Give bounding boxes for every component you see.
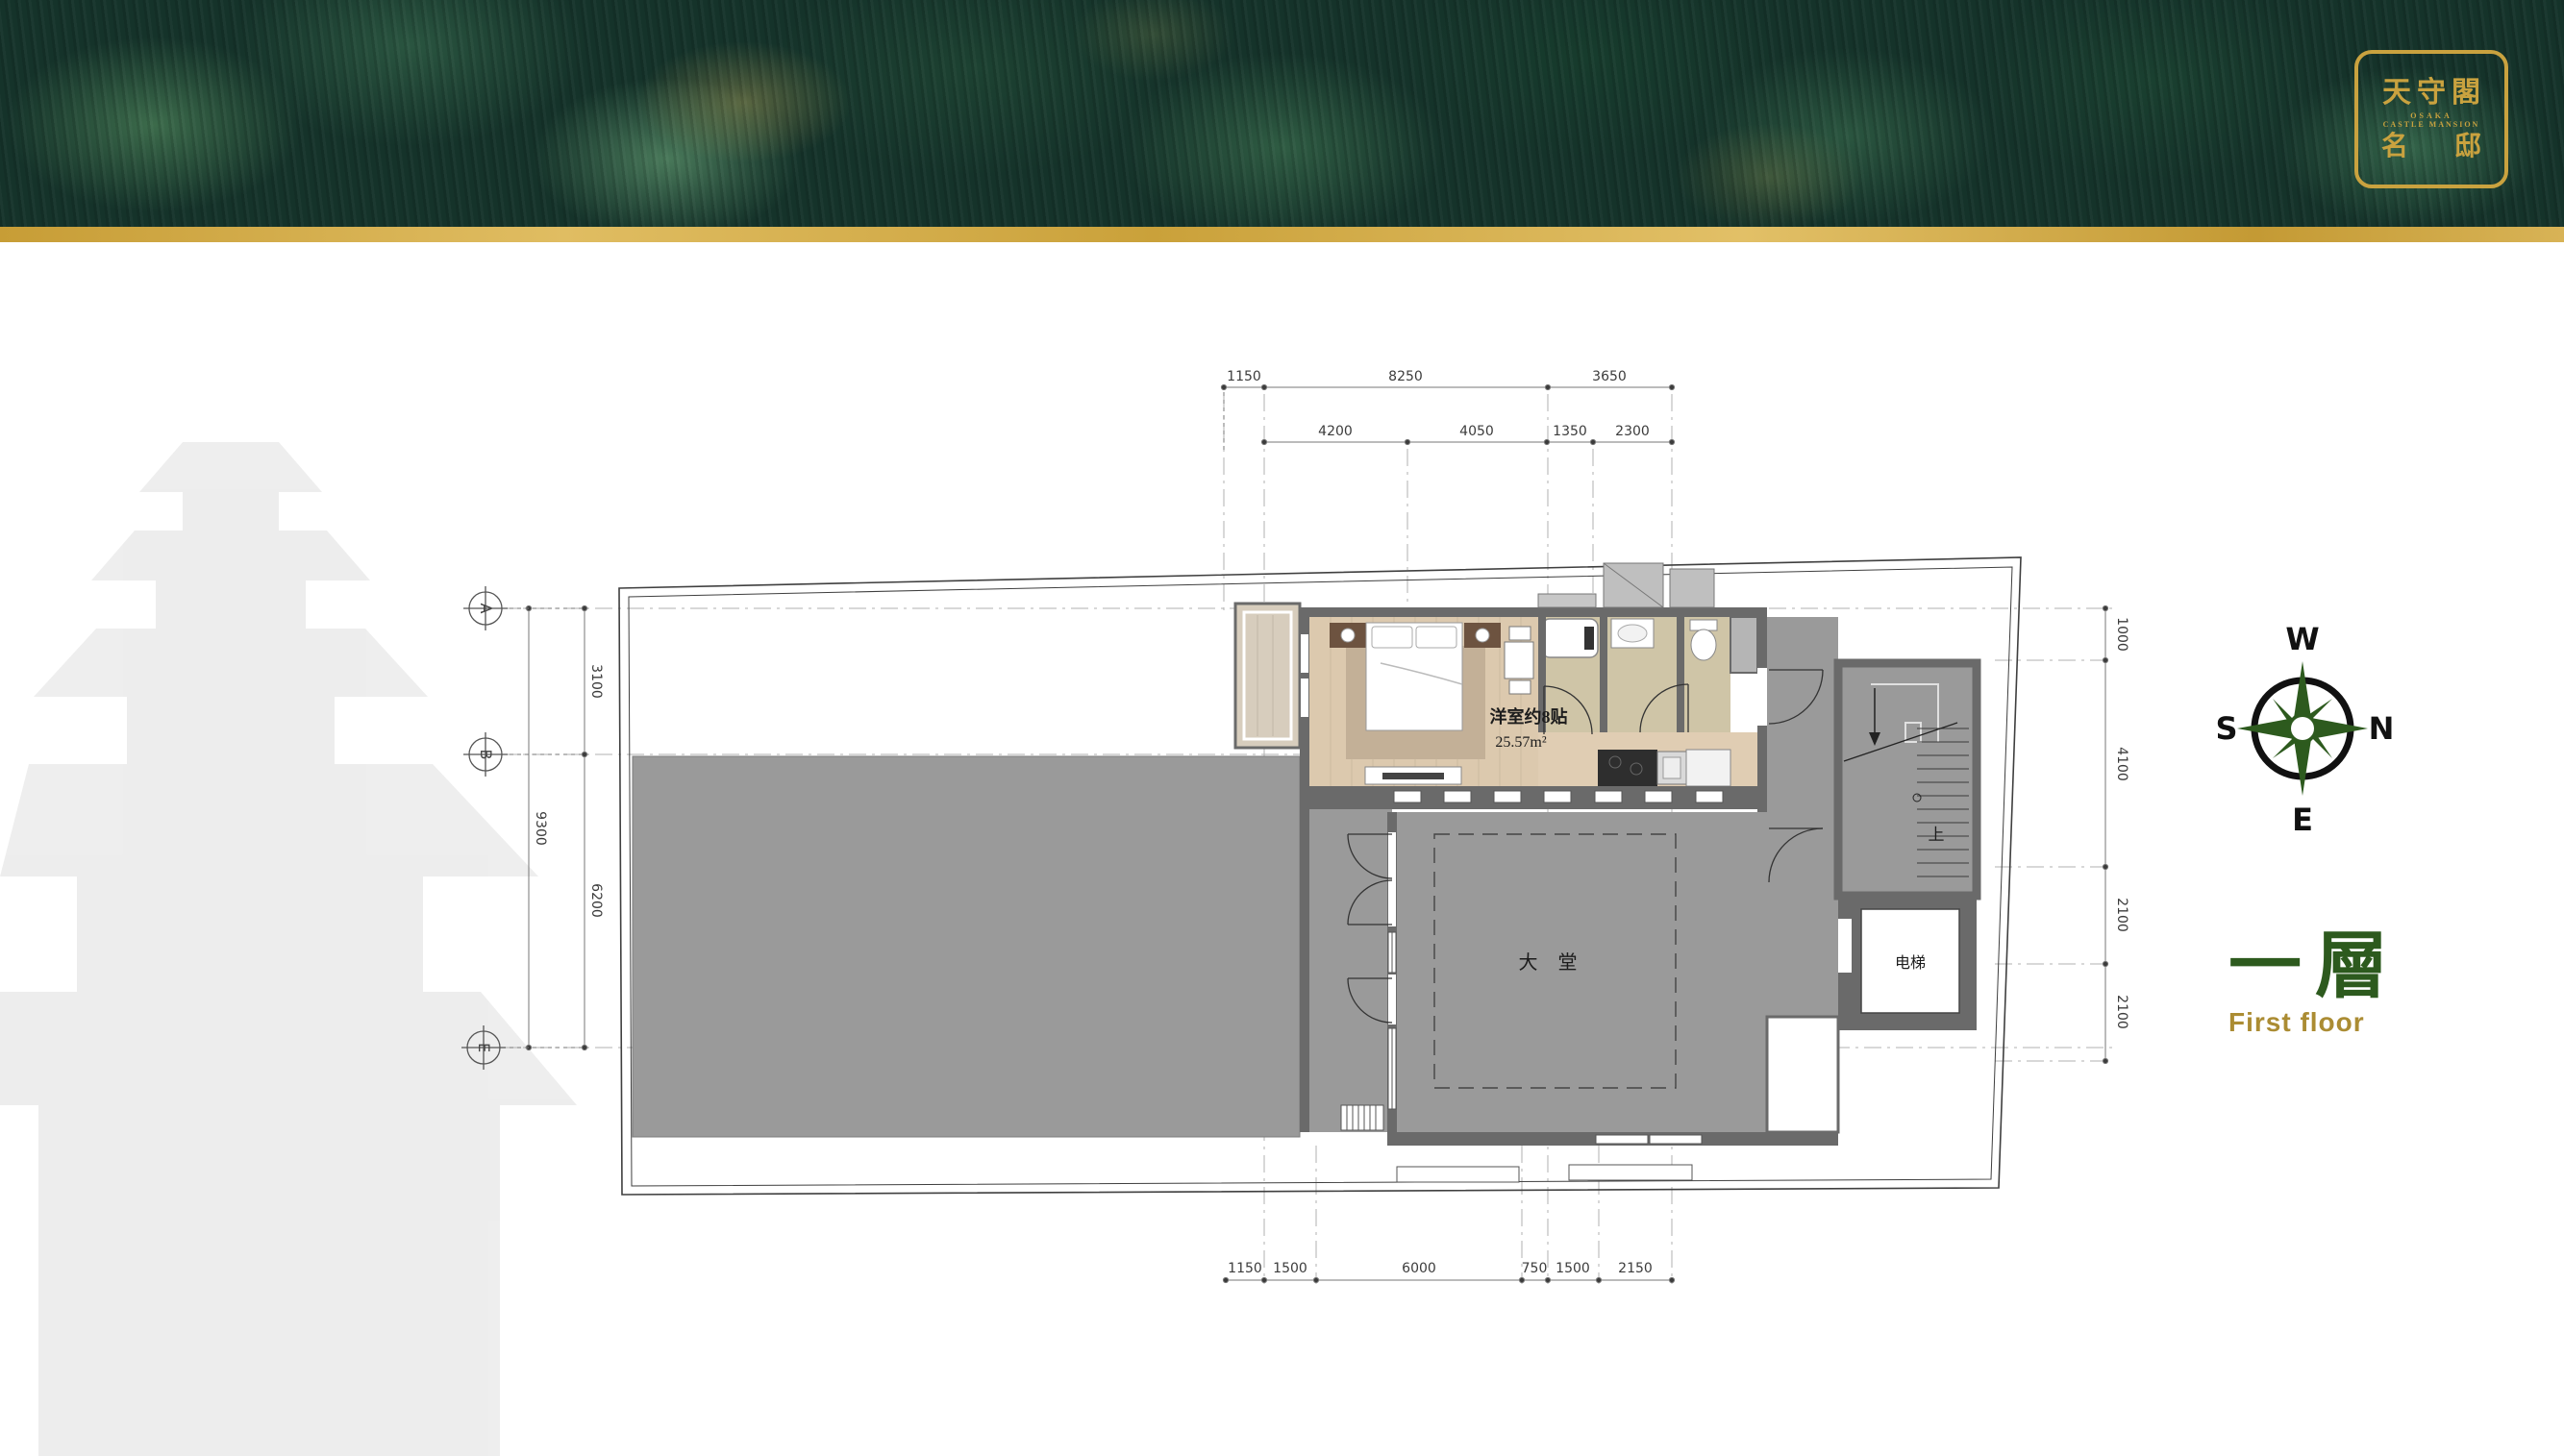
lobby-label: 大 堂 [1519,951,1585,974]
toilet-tank [1690,620,1717,630]
dim-label: 4050 [1459,424,1494,439]
chair-top [1509,627,1531,640]
dim-label: 1500 [1556,1261,1590,1276]
elevator-label: 电梯 [1895,954,1926,972]
chair-bottom [1509,680,1531,694]
compass-south-label: S [2215,710,2237,747]
dim-label: 1150 [1227,369,1261,384]
lamp-right [1476,629,1489,642]
grid-bubble-e: E [475,1043,493,1052]
compass-east-label: E [2292,802,2313,836]
compass-rose: W N S E [2206,615,2408,836]
bedroom-label: 洋室约8贴 [1490,706,1568,727]
dim-label: 1150 [1228,1261,1262,1276]
west-porch [1235,604,1300,748]
toilet [1691,629,1716,660]
compass-west-label: W [2285,621,2319,657]
dim-label: 2100 [2114,898,2129,932]
floor-title-block: 一層 First floor [2228,930,2478,1038]
dim-label: 1000 [2114,617,2129,652]
dim-label: 4200 [1318,424,1353,439]
cooktop-counter [1598,750,1657,786]
dim-label: 2100 [2114,995,2129,1029]
grid-bubble-b: B [477,750,495,760]
counter [1686,750,1730,786]
stair-block [1838,663,1977,896]
grid-bubble-a: A [477,604,495,614]
dim-label: 1500 [1273,1261,1307,1276]
dim-label: 6000 [1402,1261,1436,1276]
table [1505,642,1533,679]
terrace-area [633,756,1300,1137]
dim-label: 1350 [1553,424,1587,439]
bedroom-area-label: 25.57m² [1495,734,1546,751]
dim-label: 3100 [588,664,604,699]
entry-corridor-floor [1309,756,1392,1132]
dim-label: 2150 [1618,1261,1653,1276]
pillow-left [1372,627,1412,648]
castle-watermark-image [0,442,577,1456]
floor-plan-svg: 1150 8250 3650 4200 4050 1350 2300 1150 … [0,0,2564,1456]
dim-label: 4100 [2114,747,2129,781]
ac-equipment [1538,563,1714,607]
entry-steps [1341,1105,1383,1130]
closet [1730,617,1757,673]
pillow-right [1416,627,1456,648]
dim-label: 750 [1522,1261,1548,1276]
kitchen [1598,750,1730,786]
floor-title-en: First floor [2228,1007,2478,1038]
dim-label: 8250 [1388,369,1423,384]
stair-up-label: 上 [1929,826,1945,844]
dim-label: 2300 [1615,424,1650,439]
lobby-se-cutout [1767,1017,1838,1132]
compass-north-label: N [2369,710,2395,747]
floor-title-cn: 一層 [2228,930,2478,1003]
brochure-page: 天守閣 OSAKA CASTLE MANSION 名 邸 [0,0,2564,1456]
compass-center [2291,717,2314,740]
dim-label: 6200 [588,883,604,918]
dim-label: 3650 [1592,369,1627,384]
tv [1382,773,1444,779]
dim-label: 9300 [533,811,548,846]
lamp-left [1341,629,1355,642]
